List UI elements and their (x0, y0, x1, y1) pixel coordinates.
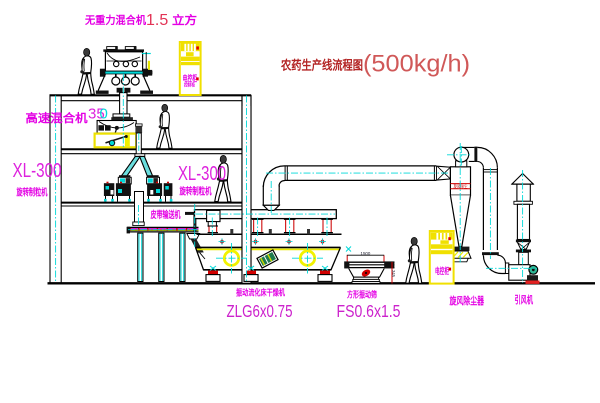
svg-text:1500: 1500 (361, 251, 371, 256)
svg-text:方形振动筛: 方形振动筛 (347, 289, 377, 300)
svg-text:旋风除尘器: 旋风除尘器 (449, 295, 485, 308)
svg-text:引风机: 引风机 (515, 294, 534, 307)
svg-text:农药生产线流程图: 农药生产线流程图 (280, 58, 363, 73)
svg-text:振动流化床干燥机: 振动流化床干燥机 (236, 287, 285, 298)
svg-text:控制柜: 控制柜 (184, 82, 195, 89)
svg-text:立方: 立方 (172, 13, 197, 27)
svg-text:FS0.6x1.5: FS0.6x1.5 (337, 301, 401, 321)
svg-text:1.5: 1.5 (146, 12, 168, 29)
svg-text:ZLG6x0.75: ZLG6x0.75 (227, 301, 293, 321)
svg-text:XL-300: XL-300 (178, 163, 226, 185)
svg-text:旋转制粒机: 旋转制粒机 (16, 187, 48, 199)
svg-text:高速混合机: 高速混合机 (26, 111, 89, 125)
svg-text:电控柜: 电控柜 (435, 265, 449, 276)
svg-text:XL-300: XL-300 (13, 160, 62, 182)
svg-text:0: 0 (100, 106, 108, 123)
svg-text:皮带输送机: 皮带输送机 (150, 209, 181, 221)
svg-text:无重力混合机: 无重力混合机 (84, 14, 146, 27)
svg-text:345: 345 (391, 270, 396, 278)
svg-text:(500kg/h): (500kg/h) (363, 51, 470, 78)
svg-text:旋转制粒机: 旋转制粒机 (179, 186, 212, 198)
